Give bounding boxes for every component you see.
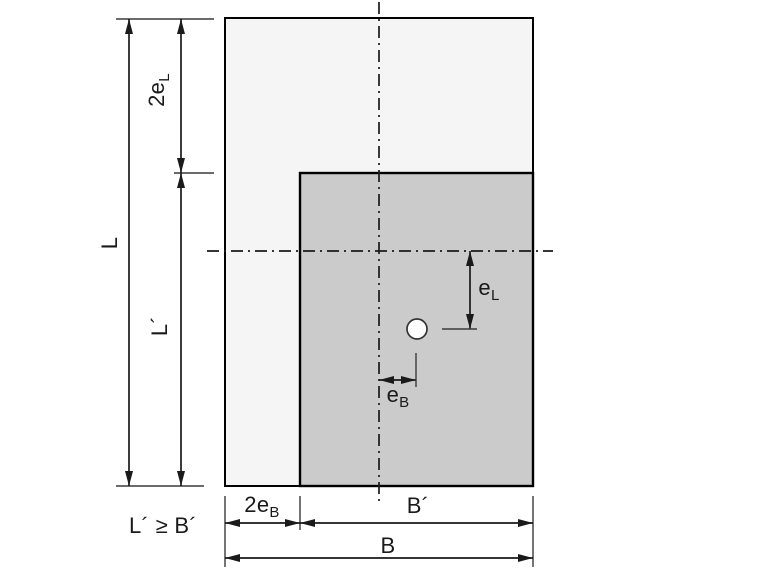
constraint-note: L´ ≥ B´ (129, 515, 197, 537)
label-eB-sub: B (399, 394, 409, 411)
label-L: L (99, 237, 121, 250)
load-point (407, 319, 427, 339)
label-2eB-sub: B (269, 504, 279, 521)
label-eL: eL (478, 277, 499, 303)
label-B-prime: B´ (407, 495, 430, 517)
label-eB-main: e (387, 382, 400, 407)
label-2eL-sub: L (156, 73, 173, 82)
label-eB: eB (387, 384, 410, 410)
label-B: B (381, 535, 396, 557)
diagram-linework (0, 0, 760, 570)
label-2eB: 2eB (244, 494, 279, 520)
label-eL-main: e (478, 275, 491, 300)
label-2eB-main: 2e (244, 492, 269, 517)
label-eL-sub: L (491, 287, 500, 304)
label-2eL: 2eL (146, 73, 172, 107)
foundation-effective-area-diagram: L 2eL L´ eL eB 2eB B´ B L´ ≥ B´ (0, 0, 760, 570)
label-2eL-main: 2e (144, 82, 169, 107)
label-L-prime: L´ (149, 316, 171, 336)
